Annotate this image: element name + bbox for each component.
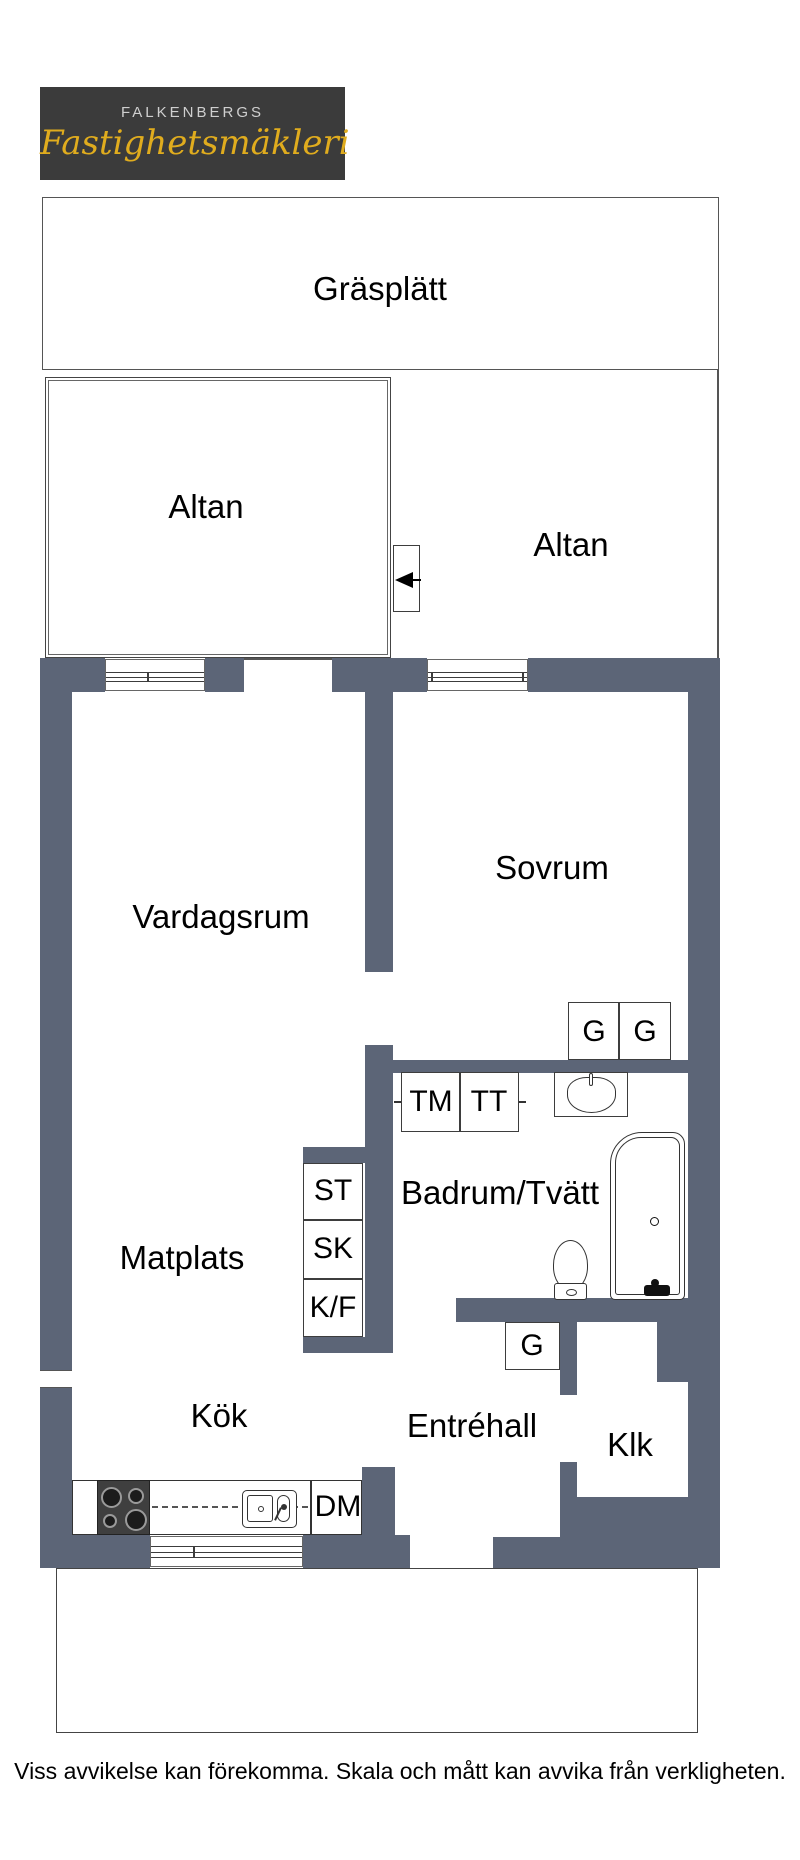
wardrobe-2-label: G [633, 1015, 656, 1049]
agency-name-script: Fastighetsmäkleri [40, 123, 345, 163]
wardrobe-1-label: G [582, 1015, 605, 1049]
agency-logo: FALKENBERGS Fastighetsmäkleri [40, 87, 345, 180]
window-divider [147, 672, 149, 682]
wall-top-2 [205, 658, 244, 692]
kitchen-window [150, 1536, 303, 1567]
disclaimer-text: Viss avvikelse kan förekomma. Skala och … [0, 1758, 800, 1785]
sink-drain [258, 1506, 264, 1512]
stove-burner [103, 1514, 117, 1528]
appliance-tick [394, 1101, 401, 1103]
stove-burner [128, 1488, 144, 1504]
wall-divider-upper [365, 692, 393, 972]
patio-door-arrow-icon [395, 572, 413, 588]
bedroom-label: Sovrum [495, 849, 609, 887]
patio-left-label: Altan [168, 488, 243, 526]
window-end-cap [522, 672, 524, 682]
window-glass-band [106, 672, 204, 682]
floorplan-page: FALKENBERGS Fastighetsmäkleri Gräsplätt … [0, 0, 800, 1860]
tumble-dryer-label: TT [471, 1085, 508, 1119]
counter-divider-line [310, 1480, 312, 1535]
wall-right-lower [688, 1382, 720, 1518]
bathtub-drain [650, 1217, 659, 1226]
wall-divider-lower [365, 1045, 393, 1353]
wall-top-4 [528, 658, 720, 692]
wall-cabinet-bottom-stub [303, 1337, 365, 1353]
washbasin-faucet [589, 1073, 593, 1086]
wall-right-closet-block [657, 1322, 720, 1382]
kitchen-sink [242, 1490, 297, 1528]
bathtub-taps-icon [644, 1285, 670, 1296]
dishwasher-label: DM [315, 1490, 362, 1524]
stove-burner [125, 1509, 147, 1531]
wall-left-upper [40, 692, 72, 1370]
bathtub-inner-line [615, 1137, 680, 1295]
wall-cabinet-top-stub [303, 1147, 365, 1163]
wall-left-break [40, 1370, 72, 1388]
window-glass-band [428, 672, 527, 682]
wall-top-3 [332, 658, 427, 692]
dining-label: Matplats [120, 1239, 245, 1277]
kitchen-label: Kök [191, 1397, 248, 1435]
appliance-tick [519, 1101, 526, 1103]
patio-right-label: Altan [533, 526, 608, 564]
fridge-freezer-label: K/F [310, 1291, 357, 1325]
wall-klk-lower-stub [560, 1462, 577, 1518]
window-end-cap [431, 672, 433, 682]
bathroom-label: Badrum/Tvätt [401, 1174, 599, 1212]
stove-burner [101, 1487, 122, 1508]
washbasin-box [554, 1072, 628, 1117]
bathtub [610, 1132, 685, 1300]
wall-bottom-entry-right [493, 1537, 560, 1568]
wall-bottom-right-mass [560, 1518, 720, 1568]
agency-name-caps: FALKENBERGS [40, 104, 345, 121]
patio-right-edge-line [717, 370, 719, 658]
bedroom-window [427, 659, 528, 691]
grass-area-label: Gräsplätt [313, 270, 447, 308]
wall-klk-bottom [577, 1497, 692, 1518]
toilet-flush-button [566, 1289, 577, 1296]
living-room-window [105, 659, 205, 691]
wall-klk-upper-stub [560, 1322, 577, 1395]
hall-label: Entréhall [407, 1407, 537, 1445]
sink-faucet [281, 1504, 287, 1510]
closet-label: Klk [607, 1426, 653, 1464]
wall-top-1 [40, 658, 105, 692]
wall-bottom-left [40, 1535, 150, 1568]
patio-door-threshold-line [244, 658, 332, 660]
bathtub-tap-knob [651, 1279, 659, 1287]
cleaning-cabinet-label: ST [314, 1174, 352, 1208]
window-divider [193, 1546, 195, 1558]
wardrobe-3-label: G [520, 1329, 543, 1363]
patio-door-arrow-line [412, 579, 421, 581]
living-room-label: Vardagsrum [132, 898, 309, 936]
window-glass-band [151, 1546, 302, 1558]
wall-bathroom-bottom [456, 1298, 720, 1322]
toilet-tank [554, 1283, 587, 1300]
wall-right-upper [688, 692, 720, 1322]
front-yard-outline [56, 1568, 698, 1733]
wall-bottom-mid [303, 1535, 410, 1568]
stove [97, 1480, 150, 1535]
cabinet-label: SK [313, 1232, 353, 1266]
washing-machine-label: TM [409, 1085, 452, 1119]
